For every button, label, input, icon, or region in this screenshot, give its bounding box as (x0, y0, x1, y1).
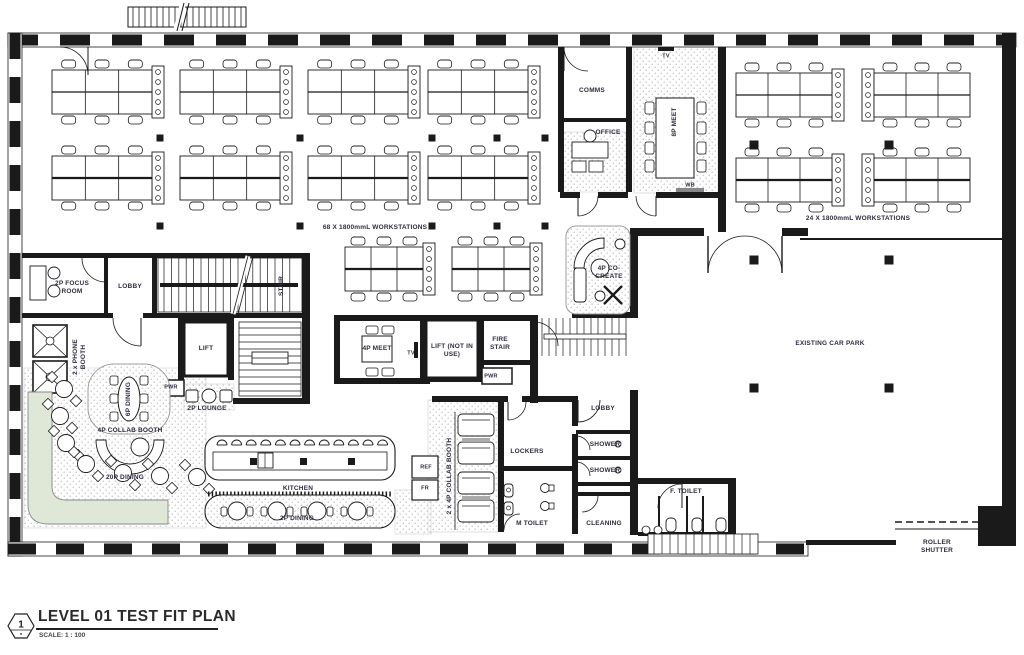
sheet-title: LEVEL 01 TEST FIT PLAN (38, 608, 236, 626)
label-2x4p-collab-booth: 2 x 4P COLLAB BOOTH (446, 438, 454, 515)
label-4p-collab-booth: 4P COLLAB BOOTH (98, 427, 163, 435)
label-shower-1: SHOWER (590, 441, 620, 449)
label-phone-booth: 2 x PHONE BOOTH (72, 334, 88, 380)
title-underline (36, 628, 218, 630)
label-lockers: LOCKERS (510, 448, 543, 456)
sheet-number: 1 (18, 620, 24, 631)
label-4p-meet: 4P MEET (362, 345, 391, 353)
label-m-toilet: M TOILET (516, 520, 548, 528)
label-workstations-68: 68 X 1800mmL WORKSTATIONS (323, 224, 427, 232)
title-block: 1 LEVEL 01 TEST FIT PLAN SCALE: 1 : 100 (0, 600, 400, 655)
label-fire-stair: FIRE STAIR (486, 336, 514, 352)
label-fr: FR (421, 486, 429, 493)
label-stair: STAIR (278, 276, 286, 296)
label-comms: COMMS (579, 87, 605, 95)
label-lobby-2: LOBBY (590, 405, 616, 413)
label-2p-dining: 2P DINING (280, 515, 314, 523)
label-lobby-1: LOBBY (117, 283, 143, 291)
sheet-scale: SCALE: 1 : 100 (39, 632, 85, 639)
label-4p-cocreate: 4P CO-CREATE (591, 265, 627, 281)
label-workstations-24: 24 X 1800mmL WORKSTATIONS (806, 215, 910, 223)
label-tv-meet4: TV (407, 351, 414, 358)
label-tv-meet8: TV (662, 54, 669, 61)
label-20p-dining: 20P DINING (106, 474, 144, 482)
floor-plan-drawing (0, 0, 1024, 655)
label-existing-car-park: EXISTING CAR PARK (795, 340, 864, 348)
label-office: OFFICE (595, 129, 620, 137)
label-pwr-1: PWR (164, 385, 177, 392)
label-2p-focus-room: 2P FOCUS ROOM (49, 280, 95, 296)
misc-symbols (128, 3, 246, 31)
label-roller-shutter: ROLLER SHUTTER (917, 539, 957, 555)
floor-plan-canvas: COMMS OFFICE 8P MEET TV WB 68 X 1800mmL … (0, 0, 1024, 655)
label-shower-2: SHOWER (590, 467, 620, 475)
label-pwr-2: PWR (484, 374, 497, 381)
label-lift-not-in-use: LIFT (NOT IN USE) (426, 343, 478, 359)
label-wb: WB (685, 183, 695, 190)
label-kitchen: KITCHEN (280, 485, 316, 493)
label-cleaning: CLEANING (586, 520, 622, 528)
label-8p-meet: 8P MEET (671, 107, 679, 136)
label-2p-lounge: 2P LOUNGE (187, 405, 226, 413)
label-lift: LIFT (199, 345, 214, 353)
label-f-toilet: F. TOILET (670, 488, 702, 496)
label-6p-dining: 6P DINING (125, 382, 133, 416)
label-ref: REF (420, 465, 432, 472)
